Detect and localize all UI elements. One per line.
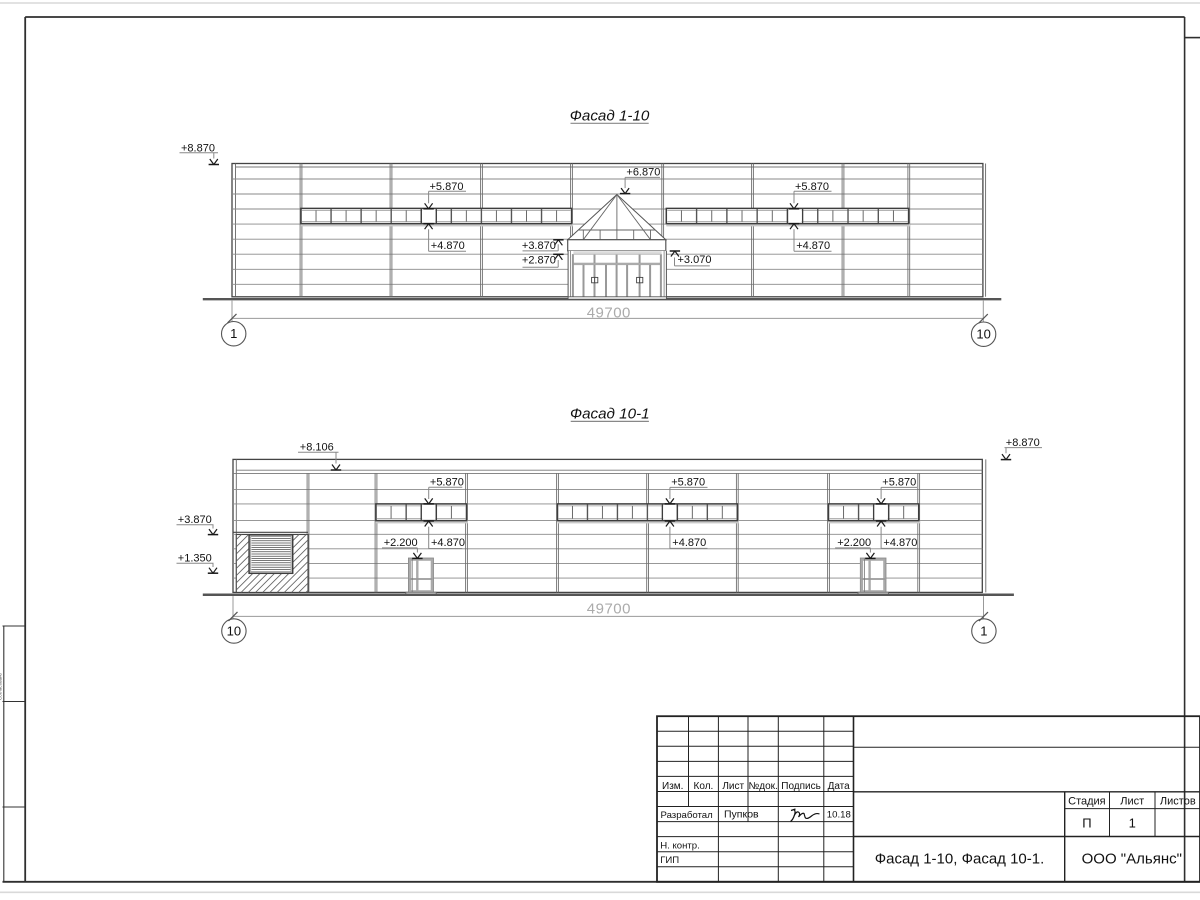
svg-text:10: 10 xyxy=(976,327,990,342)
svg-text:+6.870: +6.870 xyxy=(626,166,660,178)
svg-text:+3.870: +3.870 xyxy=(178,514,212,526)
svg-text:Н. контр.: Н. контр. xyxy=(660,841,700,852)
svg-text:ООО "Альянс": ООО "Альянс" xyxy=(1082,851,1182,868)
svg-text:49700: 49700 xyxy=(587,304,631,321)
svg-text:+4.870: +4.870 xyxy=(883,537,917,549)
svg-text:П: П xyxy=(1082,815,1091,830)
svg-text:10: 10 xyxy=(227,624,241,639)
svg-text:Дата: Дата xyxy=(828,781,851,792)
svg-text:Фасад 1-10, Фасад 10-1.: Фасад 1-10, Фасад 10-1. xyxy=(875,851,1045,868)
svg-text:+4.870: +4.870 xyxy=(431,240,465,252)
svg-text:+2.870: +2.870 xyxy=(522,254,556,266)
svg-text:Листов: Листов xyxy=(1160,796,1196,808)
svg-text:Лист: Лист xyxy=(1120,796,1144,808)
svg-text:+2.200: +2.200 xyxy=(837,537,871,549)
svg-text:1: 1 xyxy=(230,326,237,341)
svg-text:49700: 49700 xyxy=(587,600,631,617)
svg-text:+4.870: +4.870 xyxy=(796,240,830,252)
svg-text:Лист: Лист xyxy=(722,781,744,792)
svg-text:Изм.: Изм. xyxy=(662,781,683,792)
svg-text:Стадия: Стадия xyxy=(1068,796,1106,808)
svg-text:+4.870: +4.870 xyxy=(431,537,465,549)
svg-text:Разработал: Разработал xyxy=(661,810,713,821)
svg-text:Фасад 10-1: Фасад 10-1 xyxy=(570,406,650,423)
svg-text:Пупков: Пупков xyxy=(724,809,759,821)
svg-text:1: 1 xyxy=(1129,815,1136,830)
svg-text:+3.870: +3.870 xyxy=(522,240,556,252)
svg-text:Подпись: Подпись xyxy=(781,781,821,792)
svg-text:Согласовано: Согласовано xyxy=(0,672,3,700)
svg-text:10.18: 10.18 xyxy=(827,810,851,821)
svg-text:+2.200: +2.200 xyxy=(384,537,418,549)
svg-text:Фасад 1-10: Фасад 1-10 xyxy=(570,108,650,125)
svg-text:Кол.: Кол. xyxy=(694,781,714,792)
svg-text:ГИП: ГИП xyxy=(660,855,679,866)
svg-text:№док.: №док. xyxy=(749,781,778,792)
svg-text:+4.870: +4.870 xyxy=(672,537,706,549)
svg-text:1: 1 xyxy=(980,624,987,639)
svg-text:+3.070: +3.070 xyxy=(678,254,712,266)
